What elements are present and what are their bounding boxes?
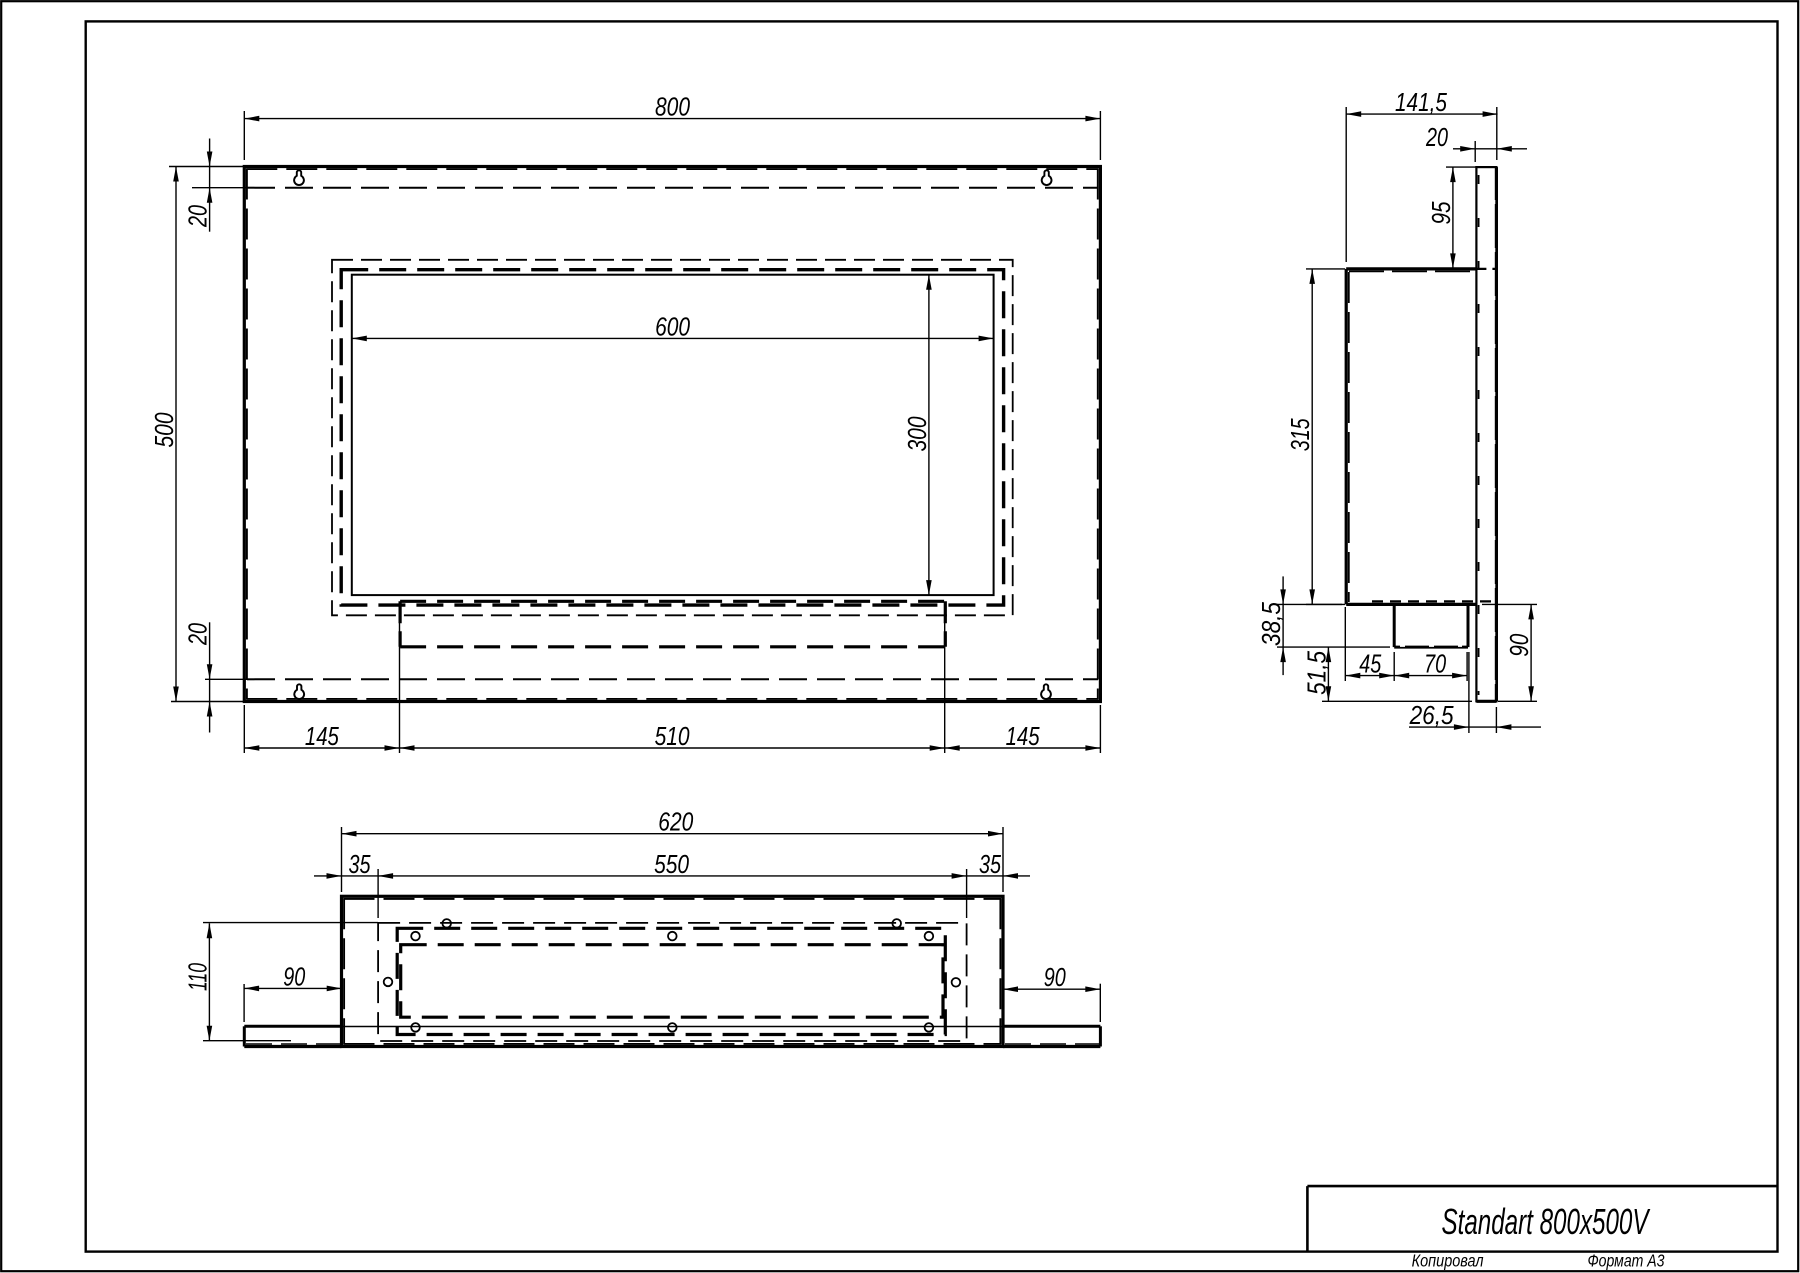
svg-text:Standart 800x500V: Standart 800x500V (1442, 1201, 1651, 1242)
svg-text:90: 90 (283, 961, 305, 991)
svg-text:35: 35 (349, 849, 371, 879)
svg-text:600: 600 (655, 311, 690, 341)
svg-text:90: 90 (1504, 633, 1534, 656)
svg-text:510: 510 (655, 721, 690, 751)
svg-text:141,5: 141,5 (1395, 87, 1447, 117)
svg-text:550: 550 (654, 849, 689, 879)
svg-text:800: 800 (655, 92, 690, 122)
svg-text:315: 315 (1285, 418, 1315, 451)
svg-text:110: 110 (182, 963, 212, 991)
svg-text:35: 35 (979, 849, 1001, 879)
svg-text:26,5: 26,5 (1409, 700, 1454, 730)
svg-text:145: 145 (305, 721, 339, 751)
svg-text:620: 620 (658, 807, 693, 837)
svg-text:95: 95 (1426, 201, 1456, 224)
svg-text:Копировал: Копировал (1412, 1251, 1484, 1271)
svg-text:70: 70 (1424, 649, 1446, 679)
svg-text:Формат А3: Формат А3 (1588, 1251, 1665, 1271)
svg-text:51,5: 51,5 (1301, 650, 1331, 694)
svg-text:300: 300 (902, 416, 932, 451)
svg-text:38,5: 38,5 (1256, 602, 1286, 646)
svg-text:20: 20 (183, 623, 213, 646)
svg-text:45: 45 (1359, 649, 1381, 679)
svg-text:20: 20 (183, 205, 213, 228)
svg-text:145: 145 (1006, 721, 1040, 751)
svg-text:500: 500 (149, 412, 179, 447)
svg-text:20: 20 (1425, 122, 1448, 152)
svg-text:90: 90 (1044, 962, 1066, 992)
